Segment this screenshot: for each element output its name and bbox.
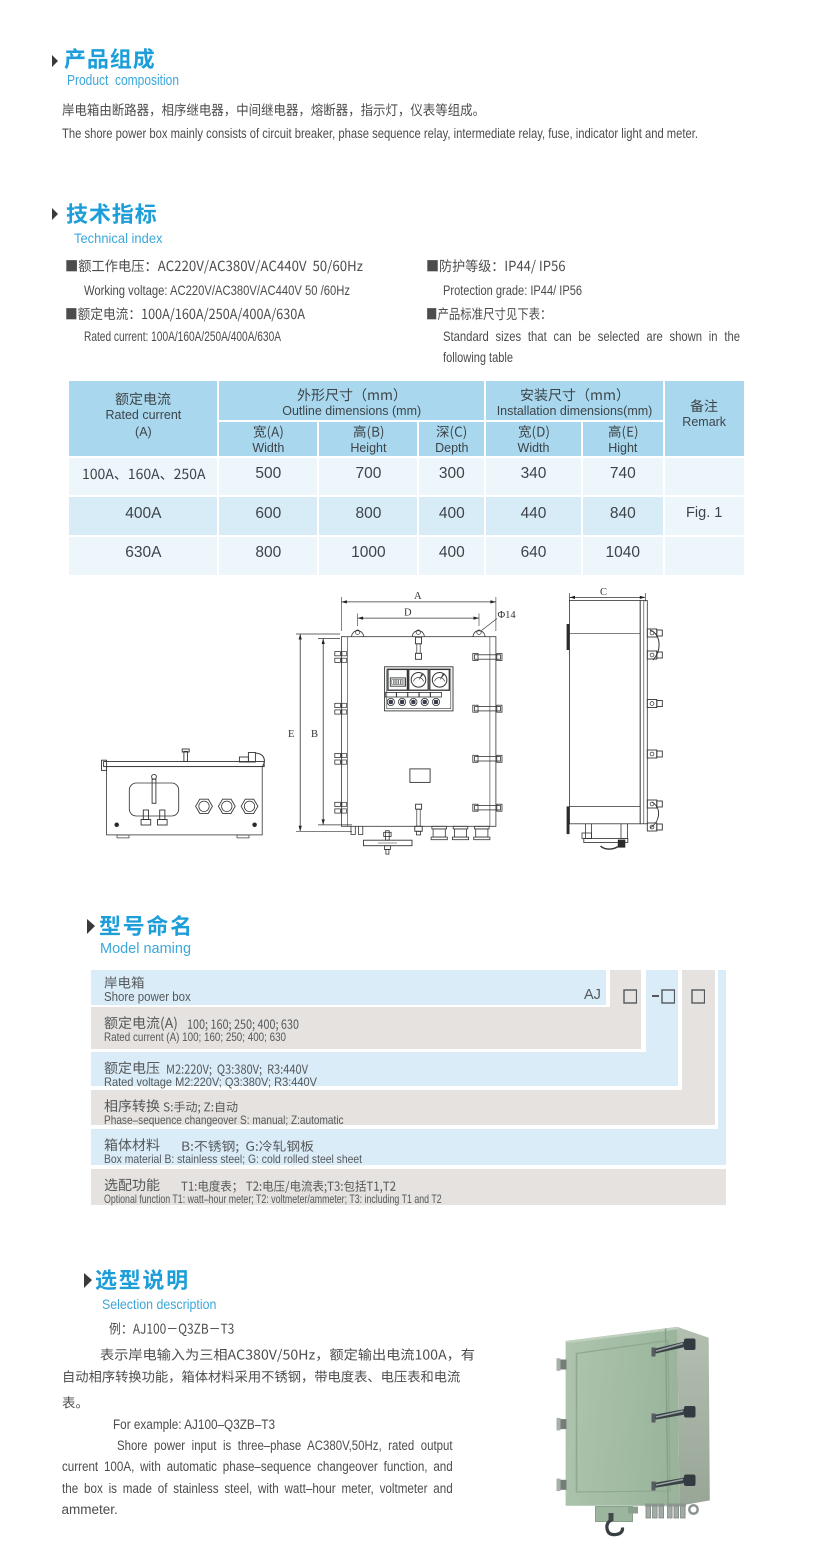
svg-text:A: A (414, 591, 422, 602)
svg-text:B: B (311, 729, 318, 740)
svg-text:Φ14: Φ14 (498, 610, 517, 621)
svg-text:E: E (288, 729, 294, 740)
svg-text:D: D (404, 608, 412, 619)
svg-text:C: C (600, 587, 607, 598)
